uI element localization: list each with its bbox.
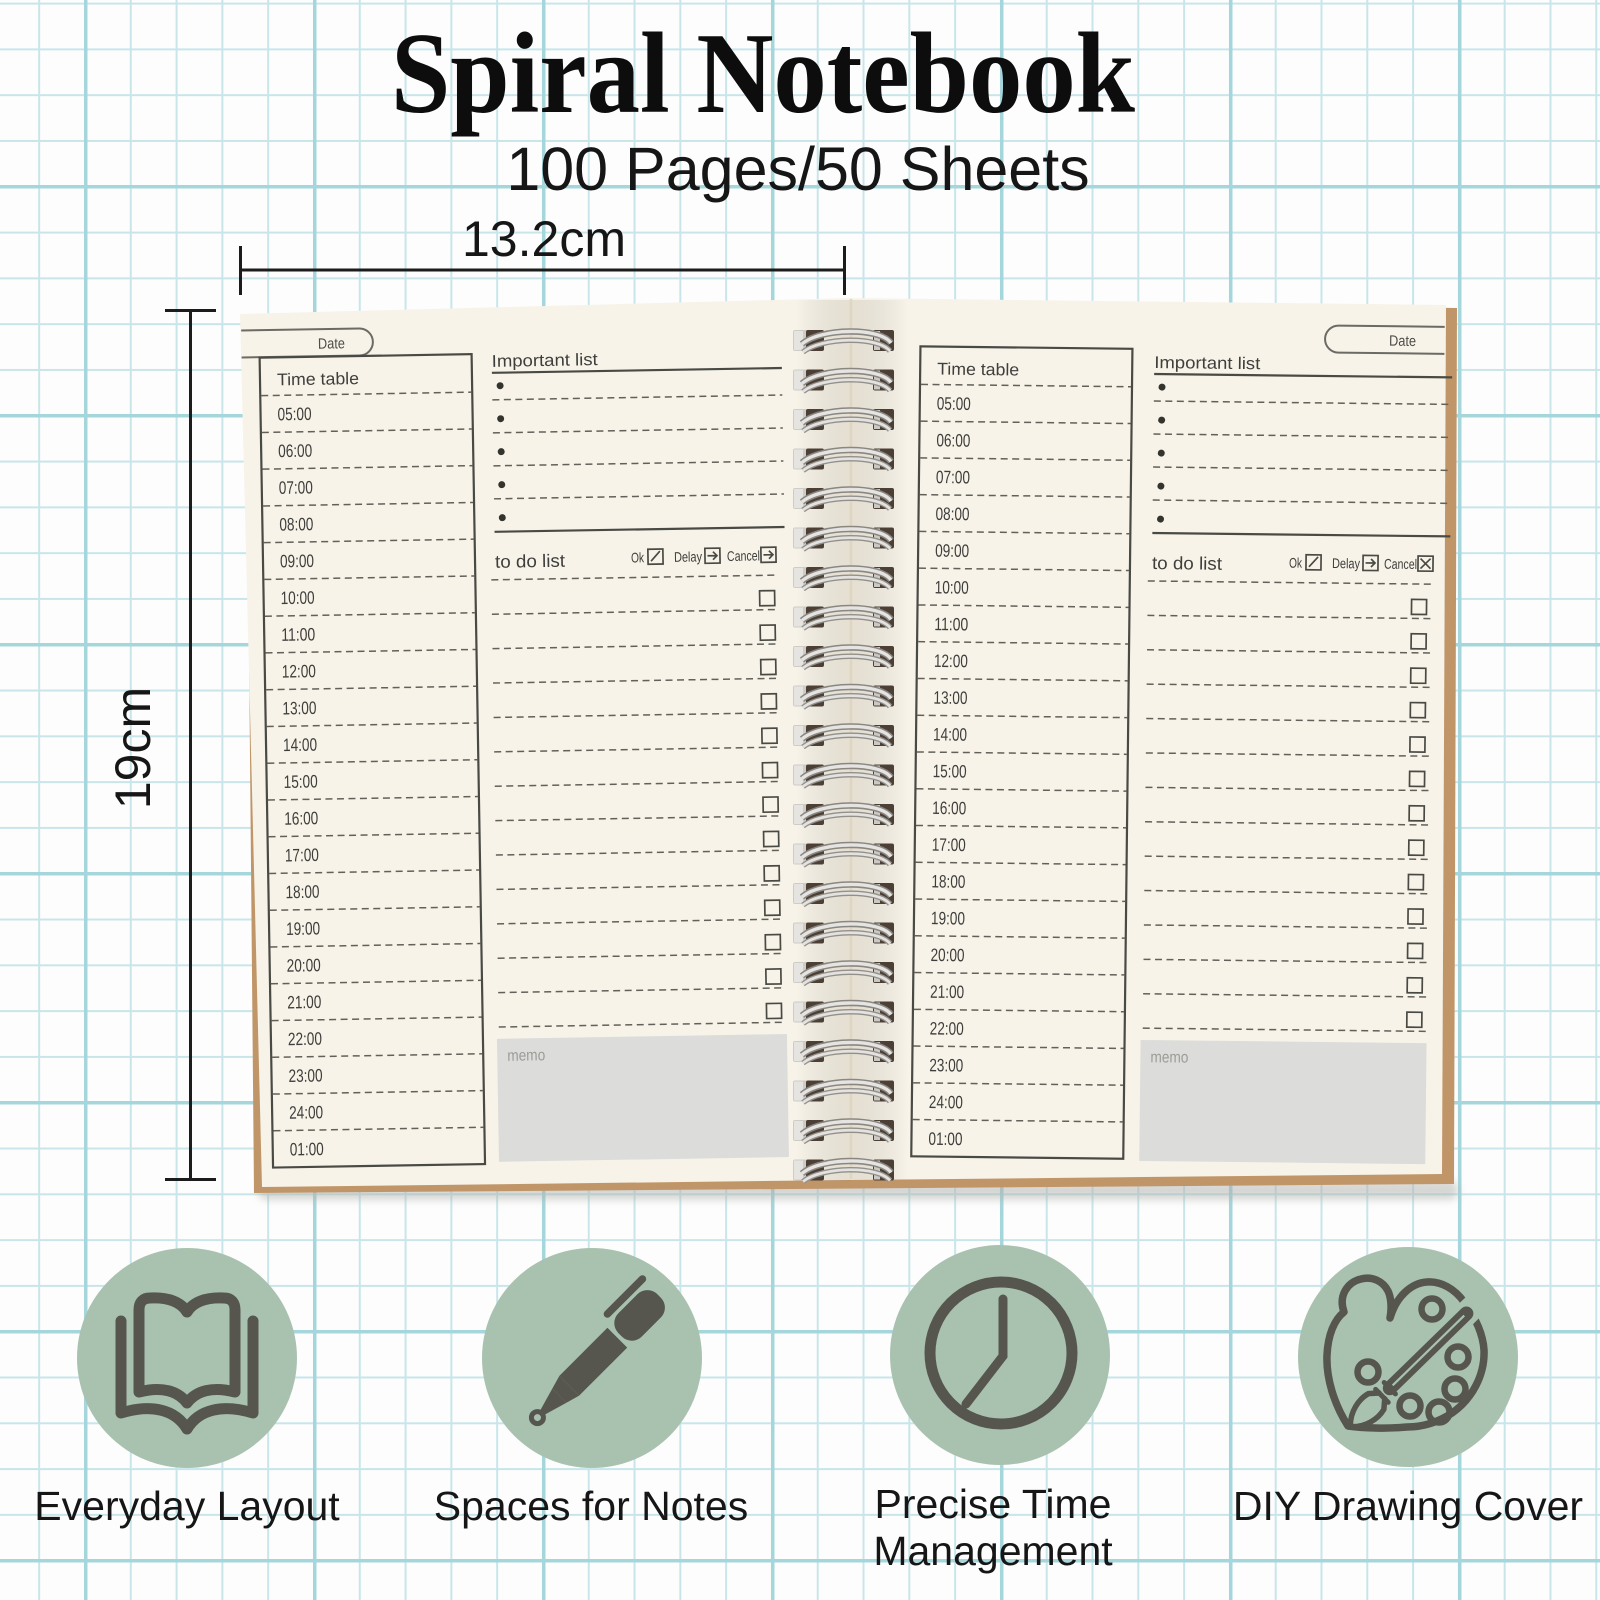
svg-text:Ok: Ok bbox=[1289, 555, 1303, 571]
svg-text:Management: Management bbox=[873, 1528, 1113, 1574]
svg-text:19:00: 19:00 bbox=[286, 918, 320, 939]
svg-text:Time table: Time table bbox=[937, 360, 1019, 380]
svg-text:09:00: 09:00 bbox=[280, 551, 314, 572]
svg-text:Date: Date bbox=[1389, 333, 1416, 350]
svg-text:14:00: 14:00 bbox=[283, 735, 317, 756]
svg-text:08:00: 08:00 bbox=[279, 514, 313, 535]
svg-text:22:00: 22:00 bbox=[930, 1018, 964, 1038]
svg-text:10:00: 10:00 bbox=[935, 577, 969, 597]
svg-text:12:00: 12:00 bbox=[934, 651, 968, 671]
svg-text:01:00: 01:00 bbox=[290, 1139, 324, 1160]
svg-text:11:00: 11:00 bbox=[934, 614, 968, 634]
svg-text:10:00: 10:00 bbox=[280, 588, 314, 609]
svg-text:24:00: 24:00 bbox=[929, 1092, 963, 1112]
svg-text:14:00: 14:00 bbox=[933, 724, 967, 744]
svg-text:07:00: 07:00 bbox=[279, 477, 313, 498]
svg-text:Cancel: Cancel bbox=[727, 547, 760, 564]
svg-text:15:00: 15:00 bbox=[933, 761, 967, 781]
svg-text:DIY Drawing Cover: DIY Drawing Cover bbox=[1233, 1483, 1583, 1529]
svg-text:05:00: 05:00 bbox=[937, 394, 971, 414]
svg-text:16:00: 16:00 bbox=[932, 798, 966, 818]
svg-text:Spiral Notebook: Spiral Notebook bbox=[391, 10, 1135, 138]
svg-text:Everyday Layout: Everyday Layout bbox=[34, 1483, 340, 1529]
svg-text:19:00: 19:00 bbox=[931, 908, 965, 928]
svg-text:13:00: 13:00 bbox=[933, 688, 967, 708]
svg-text:15:00: 15:00 bbox=[283, 771, 317, 792]
svg-text:Important list: Important list bbox=[1154, 353, 1261, 373]
svg-text:100 Pages/50 Sheets: 100 Pages/50 Sheets bbox=[506, 135, 1089, 203]
svg-text:05:00: 05:00 bbox=[277, 404, 311, 425]
svg-text:Cancel: Cancel bbox=[1384, 556, 1417, 572]
svg-text:01:00: 01:00 bbox=[928, 1129, 962, 1149]
svg-text:Important list: Important list bbox=[492, 350, 599, 371]
svg-text:21:00: 21:00 bbox=[287, 992, 321, 1013]
svg-text:Date: Date bbox=[318, 335, 345, 352]
svg-text:06:00: 06:00 bbox=[936, 430, 970, 450]
svg-text:13:00: 13:00 bbox=[282, 698, 316, 719]
svg-text:Precise Time: Precise Time bbox=[875, 1481, 1112, 1527]
svg-text:18:00: 18:00 bbox=[931, 871, 965, 891]
svg-text:Time table: Time table bbox=[277, 369, 359, 389]
svg-text:Spaces for Notes: Spaces for Notes bbox=[434, 1483, 749, 1529]
svg-text:21:00: 21:00 bbox=[930, 982, 964, 1002]
svg-text:20:00: 20:00 bbox=[930, 945, 964, 965]
svg-text:09:00: 09:00 bbox=[935, 541, 969, 561]
svg-text:to do list: to do list bbox=[1152, 553, 1222, 574]
svg-text:Delay: Delay bbox=[1332, 555, 1360, 571]
svg-text:22:00: 22:00 bbox=[288, 1029, 322, 1050]
svg-text:memo: memo bbox=[507, 1047, 545, 1065]
svg-text:11:00: 11:00 bbox=[281, 624, 315, 645]
svg-text:to do list: to do list bbox=[495, 551, 565, 572]
svg-text:06:00: 06:00 bbox=[278, 441, 312, 462]
svg-text:24:00: 24:00 bbox=[289, 1102, 323, 1123]
svg-text:08:00: 08:00 bbox=[935, 504, 969, 524]
svg-text:23:00: 23:00 bbox=[929, 1055, 963, 1075]
svg-text:Delay: Delay bbox=[674, 548, 702, 564]
svg-text:16:00: 16:00 bbox=[284, 808, 318, 829]
svg-text:17:00: 17:00 bbox=[932, 835, 966, 855]
svg-text:20:00: 20:00 bbox=[287, 955, 321, 976]
svg-text:18:00: 18:00 bbox=[285, 882, 319, 903]
svg-text:07:00: 07:00 bbox=[936, 467, 970, 487]
svg-text:13.2cm: 13.2cm bbox=[462, 211, 626, 267]
svg-text:memo: memo bbox=[1150, 1049, 1188, 1066]
svg-text:23:00: 23:00 bbox=[288, 1065, 322, 1086]
svg-text:Ok: Ok bbox=[631, 549, 645, 565]
svg-text:19cm: 19cm bbox=[105, 687, 161, 809]
svg-text:12:00: 12:00 bbox=[282, 661, 316, 682]
svg-text:17:00: 17:00 bbox=[285, 845, 319, 866]
